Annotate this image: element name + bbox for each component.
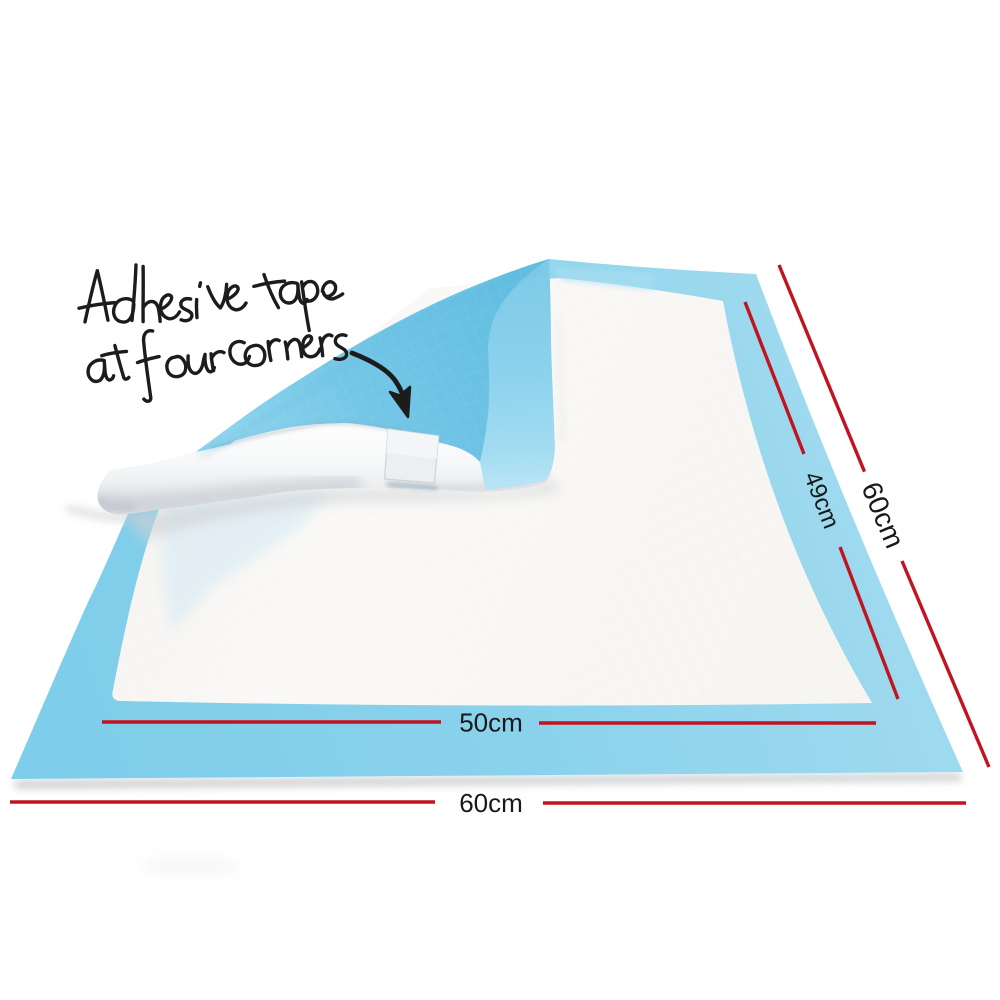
- svg-text:60cm: 60cm: [459, 788, 523, 818]
- svg-text:50cm: 50cm: [459, 708, 523, 738]
